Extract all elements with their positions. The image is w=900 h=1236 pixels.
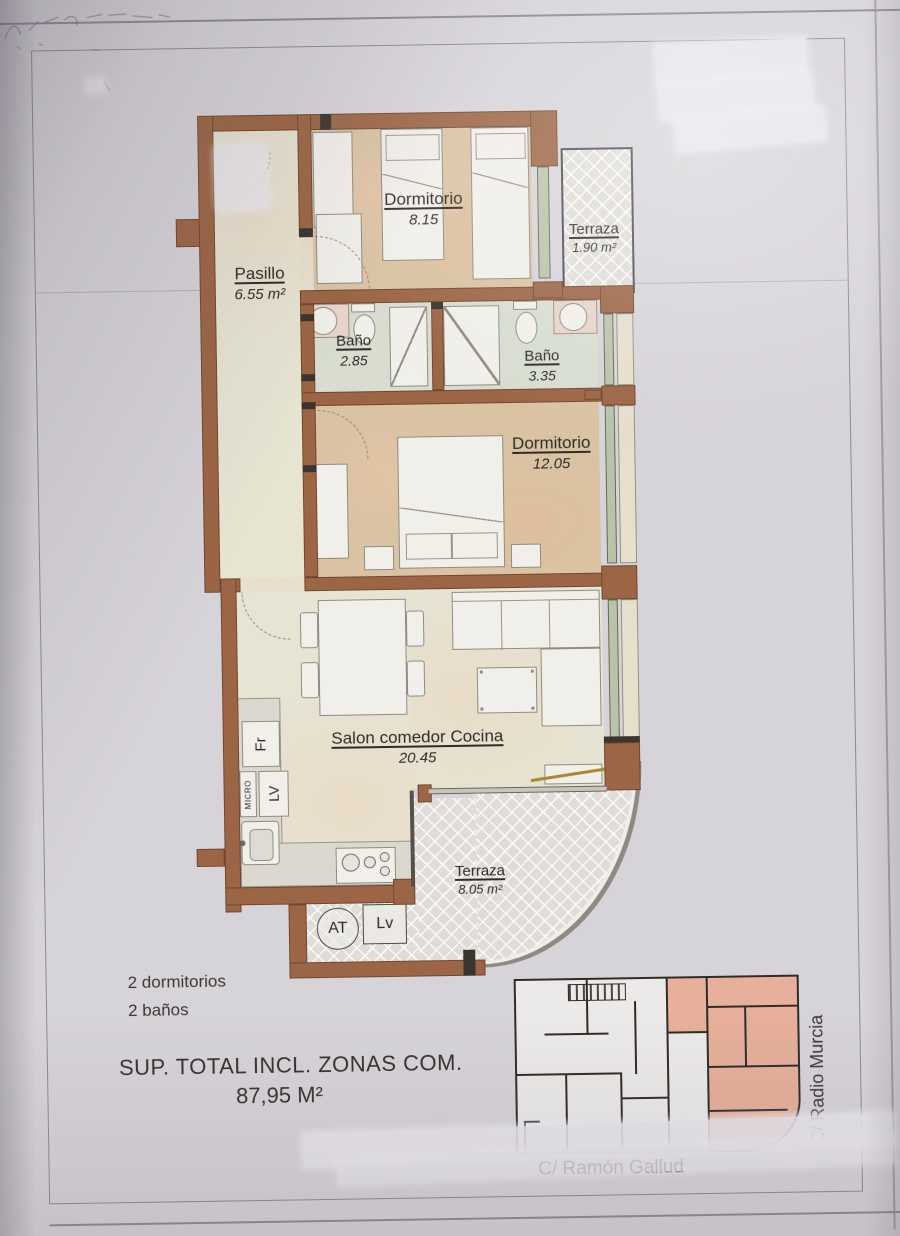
pillow xyxy=(406,533,452,560)
room-label-terrace1: Terraza 1.90 m² xyxy=(550,219,639,257)
table-corner-dot xyxy=(480,670,483,673)
window-glass xyxy=(537,166,551,278)
wall-segment xyxy=(297,114,313,236)
door-jamb xyxy=(431,302,443,309)
sofa-cushion-line xyxy=(501,600,503,650)
sofa-back-line xyxy=(453,599,599,602)
keyplan-wall xyxy=(545,1033,609,1036)
wall-segment xyxy=(601,385,635,406)
wall-segment xyxy=(288,904,307,966)
room-name: Baño xyxy=(303,331,403,352)
stove-burner xyxy=(380,852,390,862)
stove-burner xyxy=(380,866,390,876)
door-opening xyxy=(240,577,304,592)
door-jamb xyxy=(303,465,317,472)
summary-bedrooms: 2 dormitorios xyxy=(128,972,227,994)
room-area: 3.35 xyxy=(492,365,592,385)
room-label-terrace2: Terraza 8.05 m² xyxy=(432,861,529,899)
room-name: Pasillo xyxy=(207,262,311,286)
total-area-label: SUP. TOTAL INCL. ZONAS COM. xyxy=(119,1050,463,1081)
sink-basin xyxy=(249,829,273,861)
room-area: 2.85 xyxy=(304,350,404,370)
pillow xyxy=(475,133,525,160)
sofa xyxy=(452,590,601,650)
stairs-hatch xyxy=(568,983,626,1001)
room-name: Baño xyxy=(492,346,592,367)
table-corner-dot xyxy=(480,707,483,710)
coffee-table xyxy=(477,667,538,714)
door-jamb xyxy=(463,950,475,976)
stove xyxy=(336,847,397,884)
window-sill xyxy=(618,405,637,563)
handwriting-mark xyxy=(0,3,237,59)
highlighted-unit xyxy=(668,978,709,1032)
microwave: MICRO xyxy=(239,771,257,817)
room-name: Dormitorio xyxy=(353,187,493,211)
chair xyxy=(301,662,320,698)
chair xyxy=(406,610,425,646)
wall-segment xyxy=(530,110,558,166)
whiteout-patch xyxy=(215,145,268,209)
table-corner-dot xyxy=(531,707,534,710)
wall-segment xyxy=(197,849,225,867)
toilet-bowl xyxy=(515,312,537,344)
wall-segment xyxy=(584,390,601,400)
wall-segment xyxy=(289,959,485,978)
room-area: 6.55 m² xyxy=(208,284,312,305)
room-area: 1.90 m² xyxy=(550,238,638,256)
wall-segment xyxy=(225,885,415,906)
wall-segment xyxy=(533,281,563,298)
keyplan-wall xyxy=(621,1097,670,1100)
keyplan-wall xyxy=(524,1121,540,1123)
page-edge-bottom xyxy=(49,1211,900,1226)
room-name: Terraza xyxy=(432,861,528,882)
blanket-line xyxy=(399,506,503,524)
toilet xyxy=(351,303,375,312)
wall-segment xyxy=(600,285,634,314)
room-area: 8.15 xyxy=(354,209,494,231)
door-jamb xyxy=(300,314,314,321)
room-label-bedroom1: Dormitorio 8.15 xyxy=(353,187,494,231)
room-name: Salon comedor Cocina xyxy=(320,725,515,750)
wall-segment xyxy=(604,742,641,791)
wall-segment xyxy=(176,219,200,247)
dishwasher: LV xyxy=(258,771,289,817)
door-jamb xyxy=(604,736,640,743)
keyplan-wall xyxy=(666,1031,708,1034)
nightstand xyxy=(511,544,541,568)
microwave-label: MICRO xyxy=(243,780,252,809)
room-label-hallway: Pasillo 6.55 m² xyxy=(207,262,312,305)
stove-burner xyxy=(364,856,376,868)
blanket-line xyxy=(472,172,528,189)
laundry-machine: Lv xyxy=(362,904,407,945)
keyplan-wall xyxy=(634,1001,637,1074)
chair xyxy=(300,612,319,648)
chair xyxy=(407,660,426,696)
room-name: Terraza xyxy=(550,219,638,240)
room-area: 12.05 xyxy=(481,453,621,475)
total-area-value: 87,95 M² xyxy=(119,1080,439,1111)
room-label-bathroom2: Baño 3.35 xyxy=(492,346,593,385)
toilet xyxy=(513,301,537,310)
laundry-label: Lv xyxy=(376,915,393,933)
room-label-bedroom2: Dormitorio 12.05 xyxy=(481,431,622,475)
window-glass xyxy=(603,313,614,385)
room-area: 8.05 m² xyxy=(432,880,528,898)
keyplan-wall xyxy=(517,1072,622,1076)
page-edge-right xyxy=(874,0,895,1229)
dishwasher-label: LV xyxy=(266,786,282,802)
page-content: Fr MICRO LV AT Lv xyxy=(0,0,900,1236)
wall-segment xyxy=(601,565,638,600)
scanned-floor-plan-page: Fr MICRO LV AT Lv xyxy=(0,0,900,1236)
fridge: Fr xyxy=(242,721,281,768)
table-corner-dot xyxy=(531,670,534,673)
door-jamb xyxy=(302,402,316,409)
fridge-label: Fr xyxy=(252,737,269,751)
door-jamb xyxy=(320,114,331,130)
window-sill xyxy=(621,599,640,741)
sofa-chaise xyxy=(540,648,601,727)
window-sill xyxy=(616,313,634,385)
dining-table xyxy=(318,599,408,716)
room-name: Dormitorio xyxy=(481,431,621,455)
door-jamb xyxy=(299,228,313,237)
sofa-cushion-line xyxy=(549,599,551,649)
summary-bathrooms: 2 baños xyxy=(128,1000,189,1021)
nightstand xyxy=(364,546,394,570)
kitchen-sink xyxy=(241,821,280,866)
room-area: 20.45 xyxy=(320,747,515,770)
water-heater-label: AT xyxy=(328,920,348,938)
pillow xyxy=(452,532,498,559)
whiteout-patch xyxy=(87,79,103,91)
stove-burner xyxy=(342,853,360,871)
room-label-bathroom1: Baño 2.85 xyxy=(303,331,404,370)
pillow xyxy=(385,134,439,161)
room-label-living: Salon comedor Cocina 20.45 xyxy=(320,725,516,770)
wall-segment xyxy=(431,302,444,390)
door-jamb xyxy=(301,374,315,381)
